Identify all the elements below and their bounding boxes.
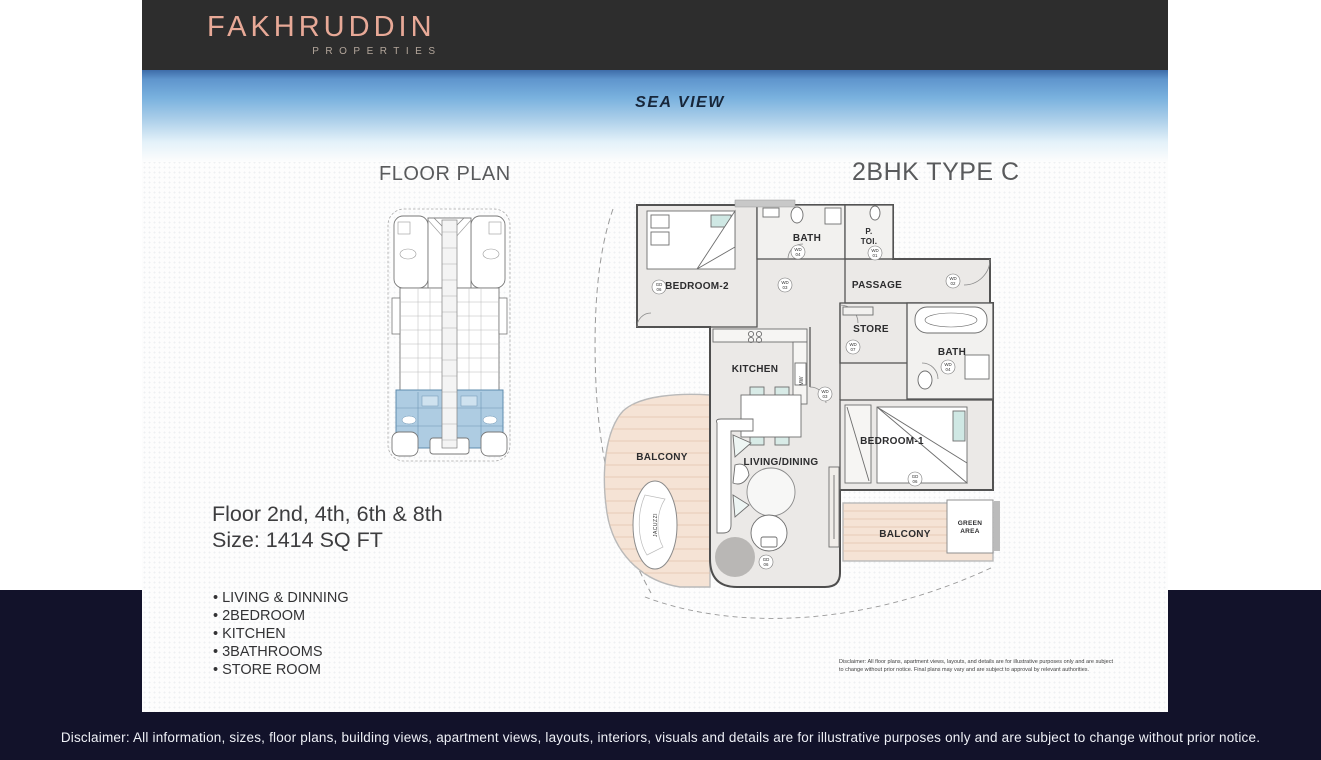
svg-text:03: 03	[783, 285, 788, 290]
feature-item: LIVING & DINNING	[213, 589, 349, 607]
unit-size-text: Size: 1414 SQ FT	[212, 527, 443, 553]
feature-item: STORE ROOM	[213, 661, 349, 679]
svg-text:02: 02	[951, 281, 956, 286]
sea-view-label: SEA VIEW	[167, 94, 1193, 112]
room-label-ptoi-2: TOI.	[861, 237, 878, 246]
feature-list: LIVING & DINNING 2BEDROOM KITCHEN 3BATHR…	[213, 589, 349, 679]
feature-item: 3BATHROOMS	[213, 643, 349, 661]
room-label-store: STORE	[853, 324, 889, 335]
brand-logo-subtitle: PROPERTIES	[207, 46, 442, 57]
brand-logo: FAKHRUDDIN PROPERTIES	[207, 11, 436, 57]
apartment-floor-plan: JACUZZI	[585, 195, 1005, 635]
brand-logo-title: FAKHRUDDIN	[207, 11, 436, 44]
svg-text:03: 03	[823, 394, 828, 399]
floor-plan-title: FLOOR PLAN	[379, 163, 511, 186]
mw-label: MW	[799, 376, 805, 385]
page: FAKHRUDDIN PROPERTIES SEA VIEW FLOOR PLA…	[0, 0, 1321, 760]
sea-view-banner: SEA VIEW	[142, 70, 1168, 162]
building-key-plan	[382, 202, 516, 466]
floor-levels-text: Floor 2nd, 4th, 6th & 8th	[212, 501, 443, 527]
brochure-flyer: FAKHRUDDIN PROPERTIES SEA VIEW FLOOR PLA…	[142, 0, 1168, 712]
room-label-living: LIVING/DINING	[743, 457, 818, 468]
room-label-kitchen: KITCHEN	[732, 364, 779, 375]
feature-item: KITCHEN	[213, 625, 349, 643]
svg-text:04: 04	[946, 367, 951, 372]
room-label-ptoi-1: P.	[865, 227, 872, 236]
room-label-bedroom1: BEDROOM-1	[860, 436, 924, 447]
svg-text:06: 06	[764, 562, 769, 567]
room-label-bath-right: BATH	[938, 347, 966, 358]
unit-type-title: 2BHK TYPE C	[852, 158, 1020, 187]
feature-item: 2BEDROOM	[213, 607, 349, 625]
svg-text:01: 01	[873, 253, 878, 258]
svg-text:06: 06	[913, 479, 918, 484]
balcony-left-area: JACUZZI	[599, 394, 715, 587]
flyer-disclaimer: Disclaimer: All floor plans, apartment v…	[839, 658, 1113, 674]
unit-details: Floor 2nd, 4th, 6th & 8th Size: 1414 SQ …	[212, 501, 443, 553]
room-label-bath-top: BATH	[793, 233, 821, 244]
svg-text:06: 06	[657, 287, 662, 292]
room-label-bedroom2: BEDROOM-2	[665, 281, 729, 292]
room-label-balcony-left: BALCONY	[636, 452, 688, 463]
jacuzzi-label: JACUZZI	[653, 513, 659, 537]
room-label-balcony-bottom: BALCONY	[879, 529, 931, 540]
room-label-green-1: GREEN	[958, 520, 983, 527]
svg-text:04: 04	[796, 252, 801, 257]
svg-text:07: 07	[851, 347, 856, 352]
room-label-passage: PASSAGE	[852, 280, 902, 291]
room-label-green-2: AREA	[960, 528, 980, 535]
flyer-header: FAKHRUDDIN PROPERTIES	[142, 0, 1168, 70]
page-disclaimer: Disclaimer: All information, sizes, floo…	[0, 730, 1321, 745]
